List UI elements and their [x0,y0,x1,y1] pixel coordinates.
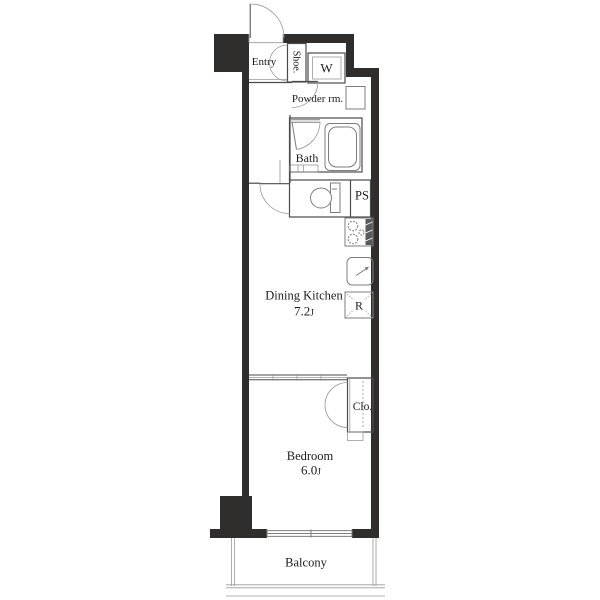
wall-right [371,68,379,538]
room-label-ps: PS [355,189,369,203]
bath-counter [290,165,319,172]
room-size-bedroom: 6.0J [301,463,321,478]
bathtub-inner [329,127,357,167]
hallway [249,115,290,214]
washbasin [346,87,365,110]
sliding-partition [249,374,347,381]
bath-door-leaf [292,122,297,150]
wall-bottom-right [352,529,379,538]
faucet [356,268,368,276]
wall-topleft-block [214,34,249,72]
room-label-shoe: Shoe. [291,51,302,74]
floorplan-drawing: Entry Shoe. W Powder rm. Bath PS Dining … [0,0,600,600]
room-label-refrigerator: R [355,299,363,313]
closet-door-arcs [325,383,348,428]
entry-door-swing-arc [250,4,284,38]
wall-top [283,34,354,43]
kitchen-sink [347,258,373,286]
entry-door [249,4,292,83]
room-label-dining-kitchen: Dining Kitchen [265,289,343,303]
room-size-dining-kitchen: 7.2J [294,304,314,319]
room-label-balcony: Balcony [285,556,327,570]
floorplan-canvas: Entry Shoe. W Powder rm. Bath PS Dining … [0,0,600,600]
balcony-window [267,530,352,538]
wall-bottom-left [210,529,267,538]
wall-left [242,72,249,496]
stove [345,218,373,246]
hall-door-swing-arc [260,184,290,214]
toilet-bowl [311,188,332,208]
room-label-closet: Clo. [353,401,373,413]
room-label-powder: Powder rm. [292,93,344,105]
room-label-bath: Bath [296,151,319,165]
bath-door-swing-arc [297,122,321,150]
room-label-bedroom: Bedroom [287,449,334,463]
room-label-entry: Entry [252,56,277,68]
room-label-washer: W [320,61,333,76]
